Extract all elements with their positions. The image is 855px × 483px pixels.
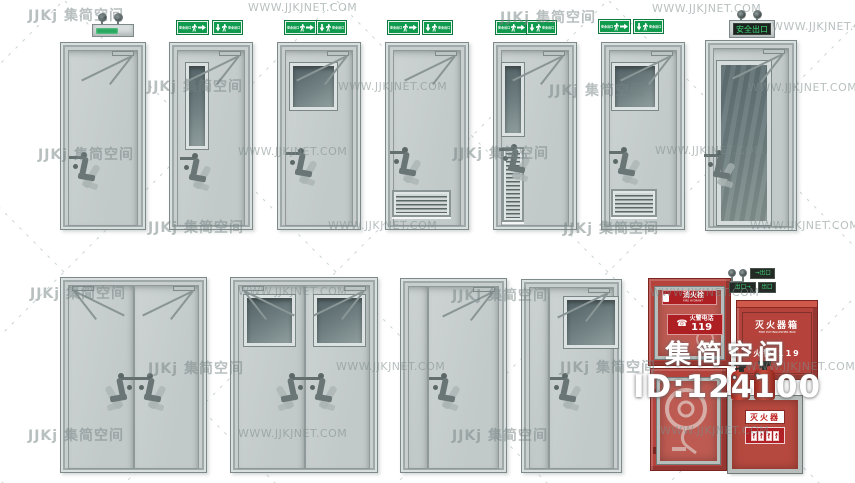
extinguisher-box-subtitle: FIRE EXTINGUISHER BOX xyxy=(758,331,795,334)
lock-cylinder xyxy=(73,164,78,169)
fire-phone-text: 火警电话119 xyxy=(690,316,714,332)
hydrant-label: 消火栓FIRE HYDRANT xyxy=(662,290,717,305)
exit-sign-text: 安全出口 xyxy=(498,26,503,29)
door-louver-vent xyxy=(611,189,657,217)
fire-door xyxy=(277,42,361,230)
spotlight-lamp-icon xyxy=(737,10,746,19)
exit-sign: 安全出口 xyxy=(317,21,346,34)
door-window xyxy=(564,297,618,348)
door-handle xyxy=(609,146,643,182)
lock-cylinder xyxy=(554,385,559,390)
fire-door xyxy=(169,42,253,230)
spotlight-lamp-icon xyxy=(98,13,107,22)
extinguisher-box-panel: 灭火器箱FIRE EXTINGUISHER BOX火警 119 xyxy=(742,312,812,374)
exit-sign-text: 安全出口 xyxy=(332,23,344,32)
led-exit-light: 安全出口 xyxy=(729,20,775,38)
door-handle xyxy=(135,372,169,408)
fire-alarm-text: 火警 119 xyxy=(753,348,800,359)
exit-sign-text: 安全出口 xyxy=(649,22,661,31)
instruction-pictograms xyxy=(745,427,785,444)
exit-sign: 安全出口 xyxy=(527,21,556,34)
door-handle xyxy=(180,152,214,188)
spotlight-lamp-icon xyxy=(728,269,736,277)
door-leaf xyxy=(68,50,138,226)
hose-reel-cabinet xyxy=(650,368,727,471)
mini-led-exit-sign: 出口→ xyxy=(729,282,756,293)
exit-sign-text: 安全出口 xyxy=(228,26,233,29)
lock-cylinder xyxy=(290,160,295,165)
door-glass-panel xyxy=(717,61,771,225)
exit-sign-text: 安全出口 xyxy=(438,23,450,32)
extinguisher-box-top xyxy=(737,301,817,308)
mini-led-exit-sign: 出口 xyxy=(758,282,776,293)
mini-led-exit-sign: →出口 xyxy=(750,268,775,279)
door-handle xyxy=(429,372,463,408)
fire-door xyxy=(521,279,622,473)
spotlight-lamp-icon xyxy=(739,269,747,277)
running-man-icon xyxy=(403,24,408,32)
model-showcase: 安全出口安全出口安全出口安全出口安全出口安全出口安全出口安全出口安全出口安全出口… xyxy=(0,0,855,483)
led-screen: 安全出口 xyxy=(733,23,771,35)
exit-sign-text: 安全出口 xyxy=(287,23,299,32)
fire-door xyxy=(60,42,146,230)
extinguisher-box-subtitle: FIRE EXTINGUISHER BOX xyxy=(746,331,808,336)
lock-cylinder xyxy=(708,162,713,167)
running-man-icon xyxy=(511,24,516,32)
door-handle xyxy=(550,372,584,408)
hinge xyxy=(653,389,656,396)
hose-reel-cabinet-glass xyxy=(657,378,720,464)
exit-sign-text: 安全出口 xyxy=(228,23,240,32)
fire-door xyxy=(385,42,469,230)
fire-phone-number: 119 xyxy=(691,323,712,333)
lock-cylinder xyxy=(184,165,189,170)
running-man-icon xyxy=(614,23,619,31)
pictogram-cell xyxy=(773,431,779,441)
door-louver-vent xyxy=(392,190,451,217)
door-handle xyxy=(704,149,738,185)
pressure-gauge xyxy=(755,373,760,378)
door-handle xyxy=(499,143,533,179)
spotlight-lamp-icon xyxy=(753,10,762,19)
running-man-icon xyxy=(192,24,197,32)
hydrant-label-main: 消火栓 xyxy=(683,292,704,299)
arrow-right-icon xyxy=(409,24,417,31)
fire-door xyxy=(400,278,507,473)
mini-led-text: →出口 xyxy=(755,271,771,277)
mini-led-text: 出口 xyxy=(761,285,772,291)
scene-layer: 安全出口安全出口安全出口安全出口安全出口安全出口安全出口安全出口安全出口安全出口… xyxy=(0,0,855,483)
extinguisher-box-title: 灭火器箱 xyxy=(755,318,799,331)
lock-cylinder xyxy=(433,385,438,390)
running-man-icon xyxy=(222,24,227,32)
running-man-icon xyxy=(643,23,648,31)
door-window xyxy=(502,63,524,136)
exit-sign-text: 安全出口 xyxy=(542,26,547,29)
door-handle xyxy=(273,372,307,408)
arrow-down-icon xyxy=(425,24,431,32)
door-handle xyxy=(69,151,103,187)
extinguisher-cabinet: 灭火器 xyxy=(728,396,802,473)
door-handle xyxy=(306,372,340,408)
arrow-right-icon xyxy=(517,24,525,31)
exit-sign: 安全出口 xyxy=(213,21,242,34)
lock-cylinder xyxy=(298,385,303,390)
running-man-icon xyxy=(536,24,541,32)
exit-sign-text: 安全出口 xyxy=(332,26,337,29)
fire-door xyxy=(493,42,577,230)
phone-icon: ☎ xyxy=(676,320,687,329)
hydrant-label-sub: FIRE HYDRANT xyxy=(684,300,704,302)
lock-cylinder xyxy=(613,159,618,164)
pictogram-cell xyxy=(751,431,757,441)
lock-cylinder xyxy=(503,156,508,161)
exit-sign-text: 安全出口 xyxy=(601,22,613,31)
exit-sign: 安全出口 xyxy=(388,21,419,34)
exit-sign-text: 安全出口 xyxy=(542,23,554,32)
exit-sign: 安全出口 xyxy=(177,21,208,34)
door-handle xyxy=(102,372,136,408)
arrow-down-icon xyxy=(319,24,325,32)
door-handle xyxy=(390,146,424,182)
lock-cylinder xyxy=(139,385,144,390)
lock-cylinder xyxy=(310,385,315,390)
door-leaf xyxy=(529,287,549,469)
arrow-right-icon xyxy=(620,23,628,30)
lock-cylinder xyxy=(394,159,399,164)
pressure-gauge xyxy=(732,375,737,380)
exit-sign: 安全出口 xyxy=(285,21,316,34)
arrow-right-icon xyxy=(306,24,314,31)
fire-extinguisher xyxy=(731,362,750,400)
door-leaf xyxy=(408,286,428,469)
hydrant-cabinet: 消火栓FIRE HYDRANT☎火警电话119 xyxy=(648,278,731,366)
running-man-icon xyxy=(326,24,331,32)
mini-led-text: 出口→ xyxy=(735,285,751,291)
pictogram-cell xyxy=(766,431,772,441)
fire-phone-label: ☎火警电话119 xyxy=(667,314,723,335)
exit-sign-text: 安全出口 xyxy=(179,26,184,29)
hydrant-icon xyxy=(663,294,669,302)
exit-sign-text: 安全出口 xyxy=(498,23,510,32)
exit-sign-text: 安全出口 xyxy=(179,23,191,32)
exit-sign-text: 安全出口 xyxy=(287,26,292,29)
hose-reel-icon xyxy=(660,381,717,461)
arrow-right-icon xyxy=(198,24,206,31)
exit-sign-text: 安全出口 xyxy=(390,26,395,29)
extinguisher-cabinet-label: 灭火器 xyxy=(745,410,785,424)
fire-door xyxy=(705,40,797,231)
fire-door xyxy=(601,42,685,230)
arrow-down-icon xyxy=(529,24,535,32)
exit-sign: 安全出口 xyxy=(496,21,527,34)
running-man-icon xyxy=(300,24,305,32)
fire-door xyxy=(60,277,207,473)
exit-sign-text: 安全出口 xyxy=(649,25,654,28)
hinge xyxy=(653,447,656,454)
lock-cylinder xyxy=(127,385,132,390)
hydrant-label-text: 消火栓FIRE HYDRANT xyxy=(671,292,715,303)
fire-extinguisher xyxy=(754,360,775,400)
arrow-down-icon xyxy=(636,23,642,31)
pictogram-cell xyxy=(758,431,764,441)
arrow-down-icon xyxy=(215,24,221,32)
running-man-icon xyxy=(432,24,437,32)
emergency-light-label xyxy=(96,28,118,34)
exit-sign: 安全出口 xyxy=(599,20,630,33)
exit-sign-text: 安全出口 xyxy=(438,26,443,29)
exit-sign: 安全出口 xyxy=(423,21,452,34)
door-handle xyxy=(286,147,320,183)
spotlight-lamp-icon xyxy=(114,13,123,22)
exit-sign: 安全出口 xyxy=(634,20,663,33)
exit-sign-text: 安全出口 xyxy=(601,25,606,28)
fire-door xyxy=(230,277,378,473)
door-window xyxy=(612,63,658,110)
exit-sign-text: 安全出口 xyxy=(390,23,402,32)
emergency-light xyxy=(92,24,134,37)
